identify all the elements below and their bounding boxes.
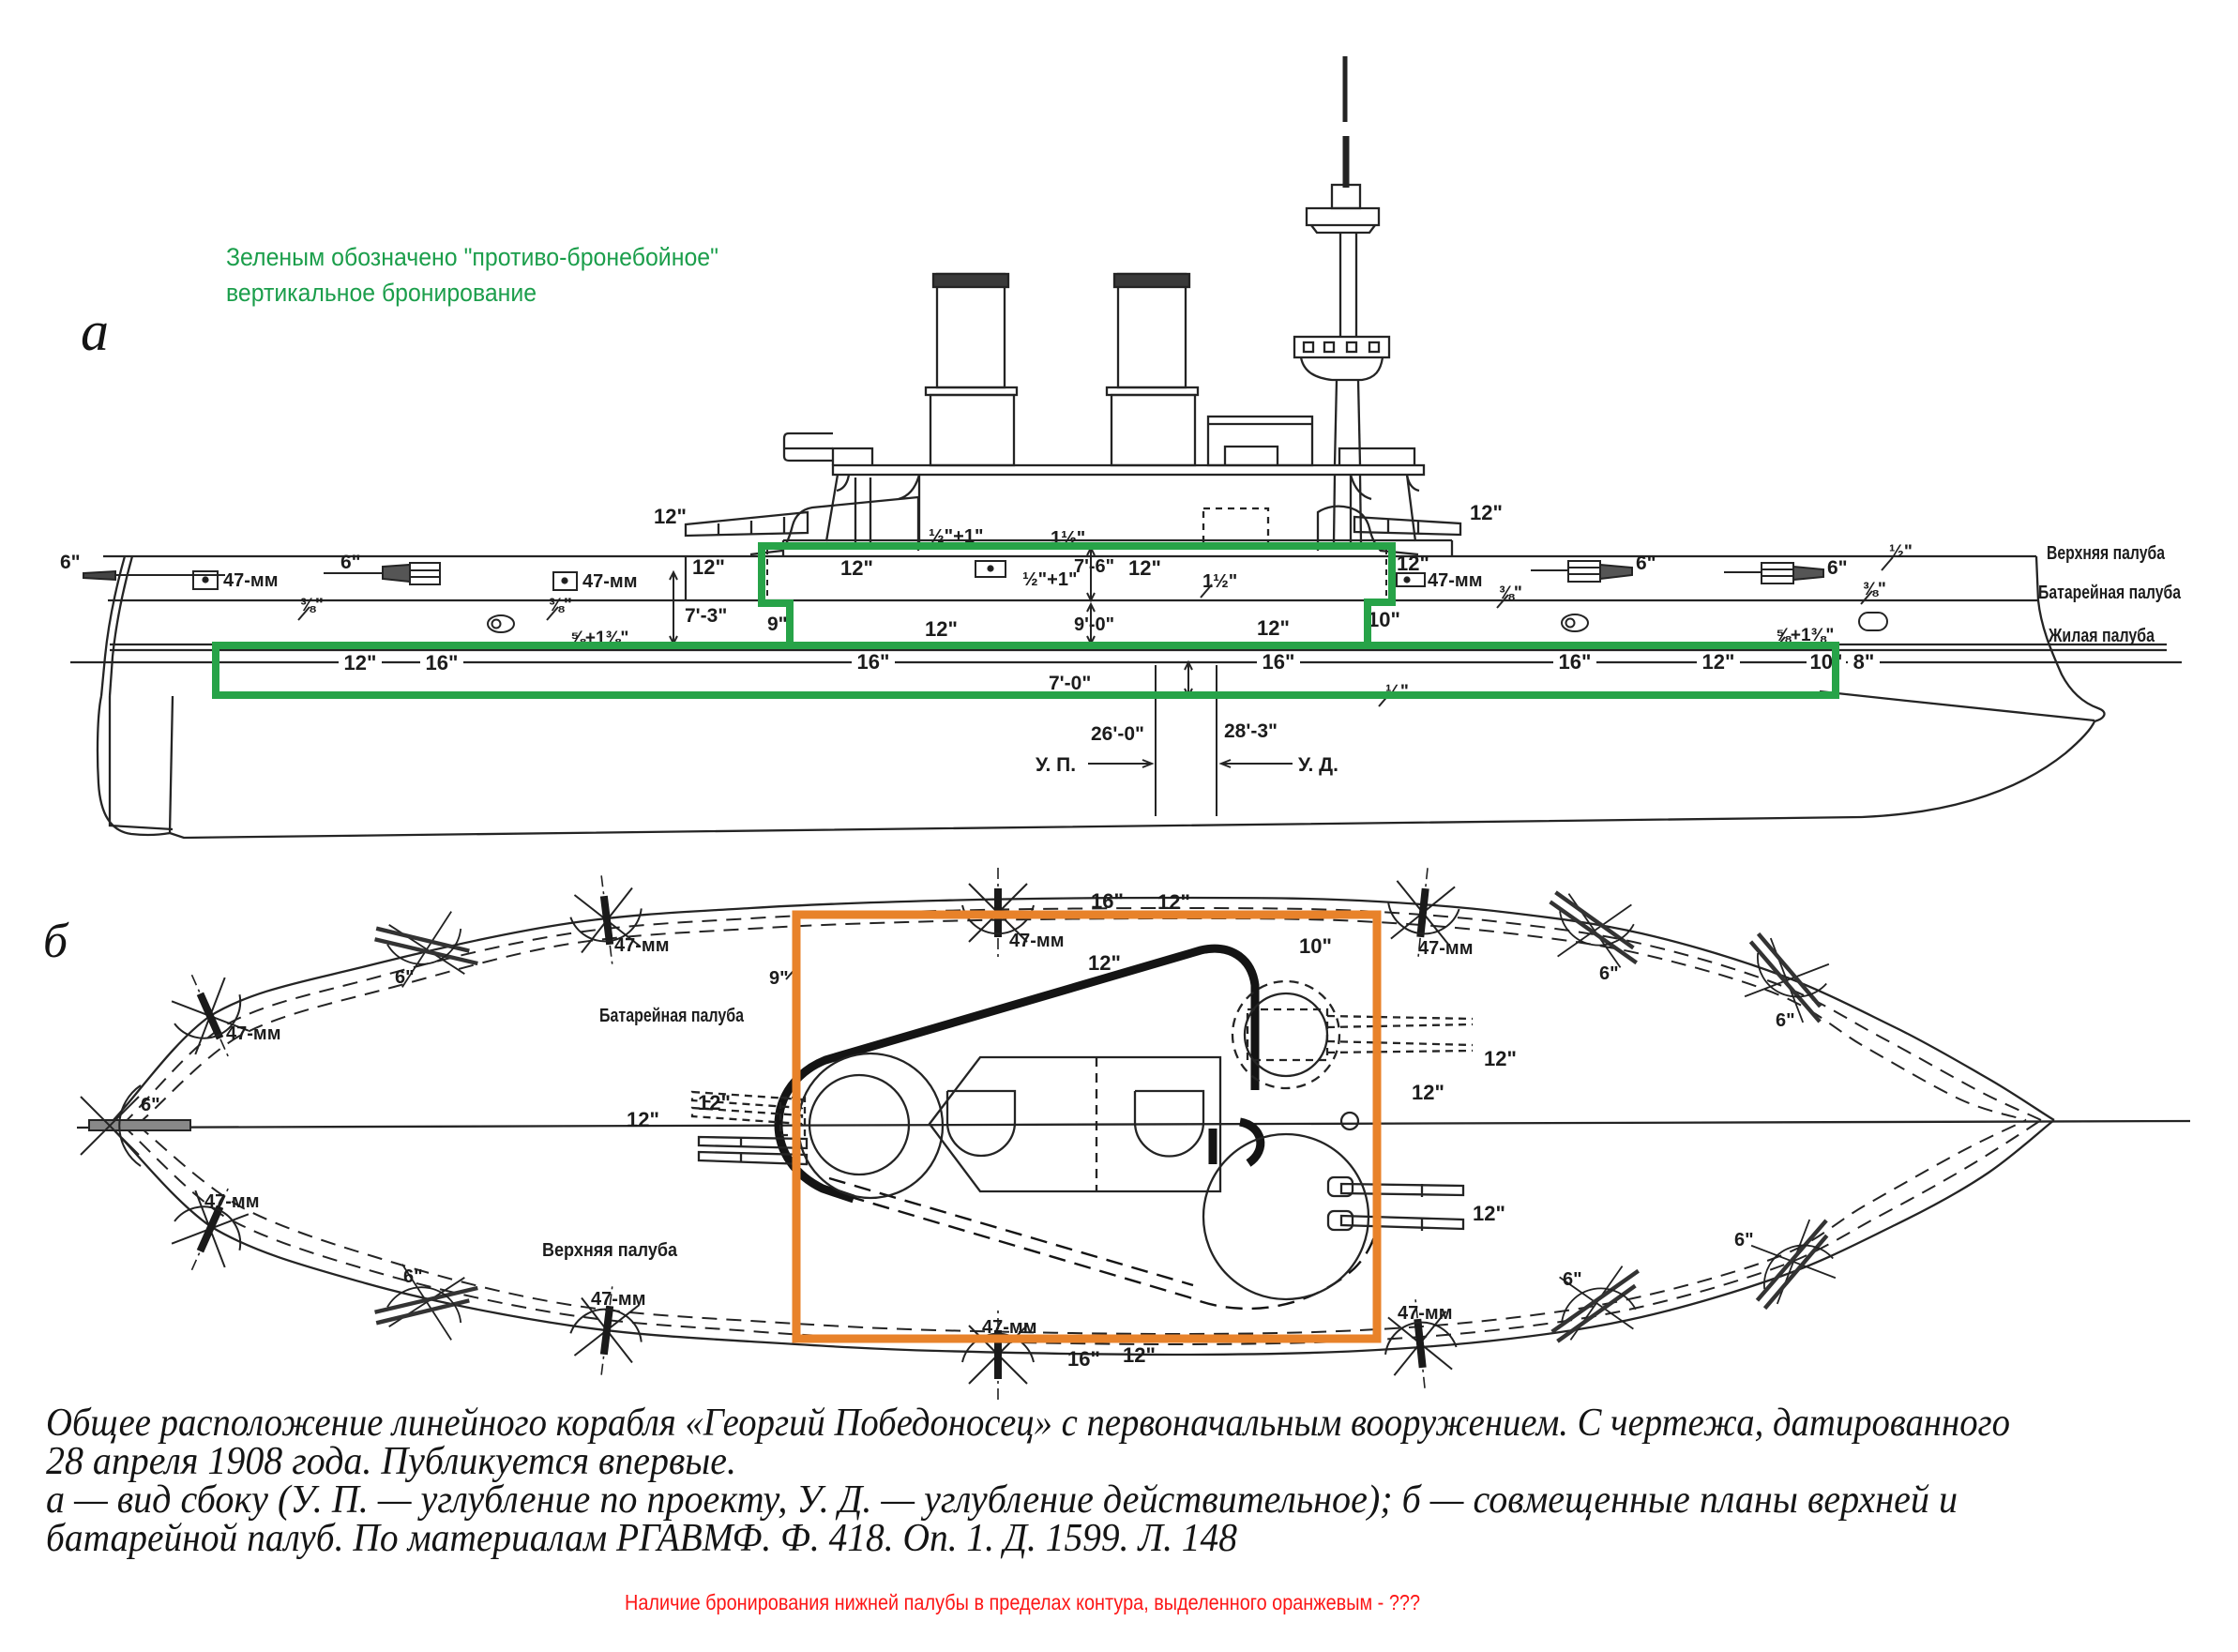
svg-text:12": 12"	[1128, 556, 1161, 580]
svg-text:У. П.: У. П.	[1036, 754, 1076, 776]
svg-text:6": 6"	[395, 967, 415, 988]
svg-text:7'-3": 7'-3"	[685, 605, 727, 627]
svg-text:6": 6"	[60, 552, 81, 573]
svg-text:12": 12"	[698, 1091, 731, 1114]
svg-text:Общее расположение линейного к: Общее расположение линейного корабля «Ге…	[46, 1402, 2010, 1445]
svg-text:8": 8"	[1853, 650, 1875, 674]
svg-text:47-мм: 47-мм	[1398, 1303, 1453, 1324]
svg-text:16": 16"	[1067, 1347, 1100, 1371]
svg-text:12": 12"	[840, 556, 873, 580]
svg-text:47-мм: 47-мм	[591, 1289, 646, 1310]
svg-text:6": 6"	[141, 1095, 160, 1115]
svg-text:½"+1": ½"+1"	[1022, 569, 1077, 590]
svg-text:Батарейная палуба: Батарейная палуба	[599, 1006, 745, 1026]
svg-text:47-мм: 47-мм	[582, 571, 638, 592]
svg-text:6": 6"	[1734, 1230, 1754, 1250]
svg-text:6": 6"	[1636, 553, 1656, 574]
svg-text:16": 16"	[1263, 650, 1295, 674]
svg-text:16": 16"	[1091, 889, 1124, 913]
svg-text:Зеленым обозначено "противо-бр: Зеленым обозначено "противо-бронебойное"	[226, 243, 718, 271]
svg-text:10": 10"	[1368, 608, 1400, 631]
svg-text:12": 12"	[1123, 1343, 1156, 1367]
svg-text:12": 12"	[627, 1108, 659, 1131]
svg-text:47-мм: 47-мм	[223, 570, 279, 591]
svg-text:6": 6"	[1563, 1269, 1582, 1290]
svg-text:47-мм: 47-мм	[1428, 570, 1483, 591]
svg-text:10": 10"	[1299, 934, 1332, 958]
svg-text:9": 9"	[769, 968, 789, 989]
svg-text:7'-0": 7'-0"	[1049, 673, 1091, 694]
svg-text:вертикальное бронирование: вертикальное бронирование	[226, 279, 537, 307]
svg-text:6": 6"	[403, 1266, 423, 1287]
svg-text:Наличие бронирования нижней па: Наличие бронирования нижней палубы в пре…	[625, 1590, 1420, 1614]
svg-text:12": 12"	[1257, 616, 1290, 640]
svg-text:батарейной палуб. По материала: батарейной палуб. По материалам РГАВМФ. …	[46, 1517, 1237, 1560]
svg-text:47-мм: 47-мм	[1009, 931, 1065, 951]
svg-text:28 апреля 1908 года. Публикует: 28 апреля 1908 года. Публикуется впервые…	[46, 1440, 736, 1483]
svg-text:47-мм: 47-мм	[226, 1023, 281, 1044]
svg-text:12": 12"	[692, 555, 725, 579]
svg-text:а: а	[81, 300, 109, 362]
svg-text:Верхняя палуба: Верхняя палуба	[2047, 543, 2166, 564]
svg-text:12": 12"	[925, 617, 958, 641]
svg-text:12": 12"	[1412, 1081, 1444, 1104]
svg-text:28'-3": 28'-3"	[1224, 720, 1278, 742]
svg-text:12": 12"	[654, 505, 687, 528]
svg-text:Батарейная палуба: Батарейная палуба	[2038, 583, 2182, 603]
svg-text:47-мм: 47-мм	[1418, 938, 1474, 959]
svg-text:У. Д.: У. Д.	[1298, 754, 1338, 776]
svg-text:16": 16"	[426, 651, 459, 674]
svg-text:12": 12"	[1473, 1202, 1505, 1225]
svg-text:47-мм: 47-мм	[614, 935, 670, 956]
svg-text:47-мм: 47-мм	[204, 1191, 260, 1212]
svg-text:12": 12"	[1088, 951, 1121, 975]
svg-text:6": 6"	[1776, 1010, 1795, 1031]
svg-text:9'-0": 9'-0"	[1074, 614, 1114, 635]
svg-text:7'-6": 7'-6"	[1074, 556, 1114, 577]
svg-text:6": 6"	[1599, 963, 1619, 984]
svg-text:16": 16"	[857, 650, 890, 674]
svg-text:26'-0": 26'-0"	[1091, 723, 1144, 745]
svg-text:6": 6"	[1827, 557, 1848, 579]
svg-text:9": 9"	[767, 614, 788, 635]
svg-text:12": 12"	[1157, 890, 1190, 914]
svg-text:12": 12"	[1484, 1047, 1517, 1070]
svg-text:Верхняя палуба: Верхняя палуба	[542, 1240, 678, 1261]
svg-text:б: б	[43, 915, 69, 968]
svg-text:12": 12"	[1702, 650, 1735, 674]
svg-text:16": 16"	[1559, 650, 1592, 674]
svg-text:а — вид сбоку (У. П. — углубле: а — вид сбоку (У. П. — углубление по про…	[46, 1478, 1958, 1522]
svg-text:6": 6"	[340, 552, 361, 573]
svg-text:12": 12"	[1470, 501, 1503, 524]
svg-text:12": 12"	[344, 651, 377, 674]
svg-text:Жилая палуба: Жилая палуба	[2048, 626, 2155, 646]
svg-text:12": 12"	[1397, 552, 1429, 575]
